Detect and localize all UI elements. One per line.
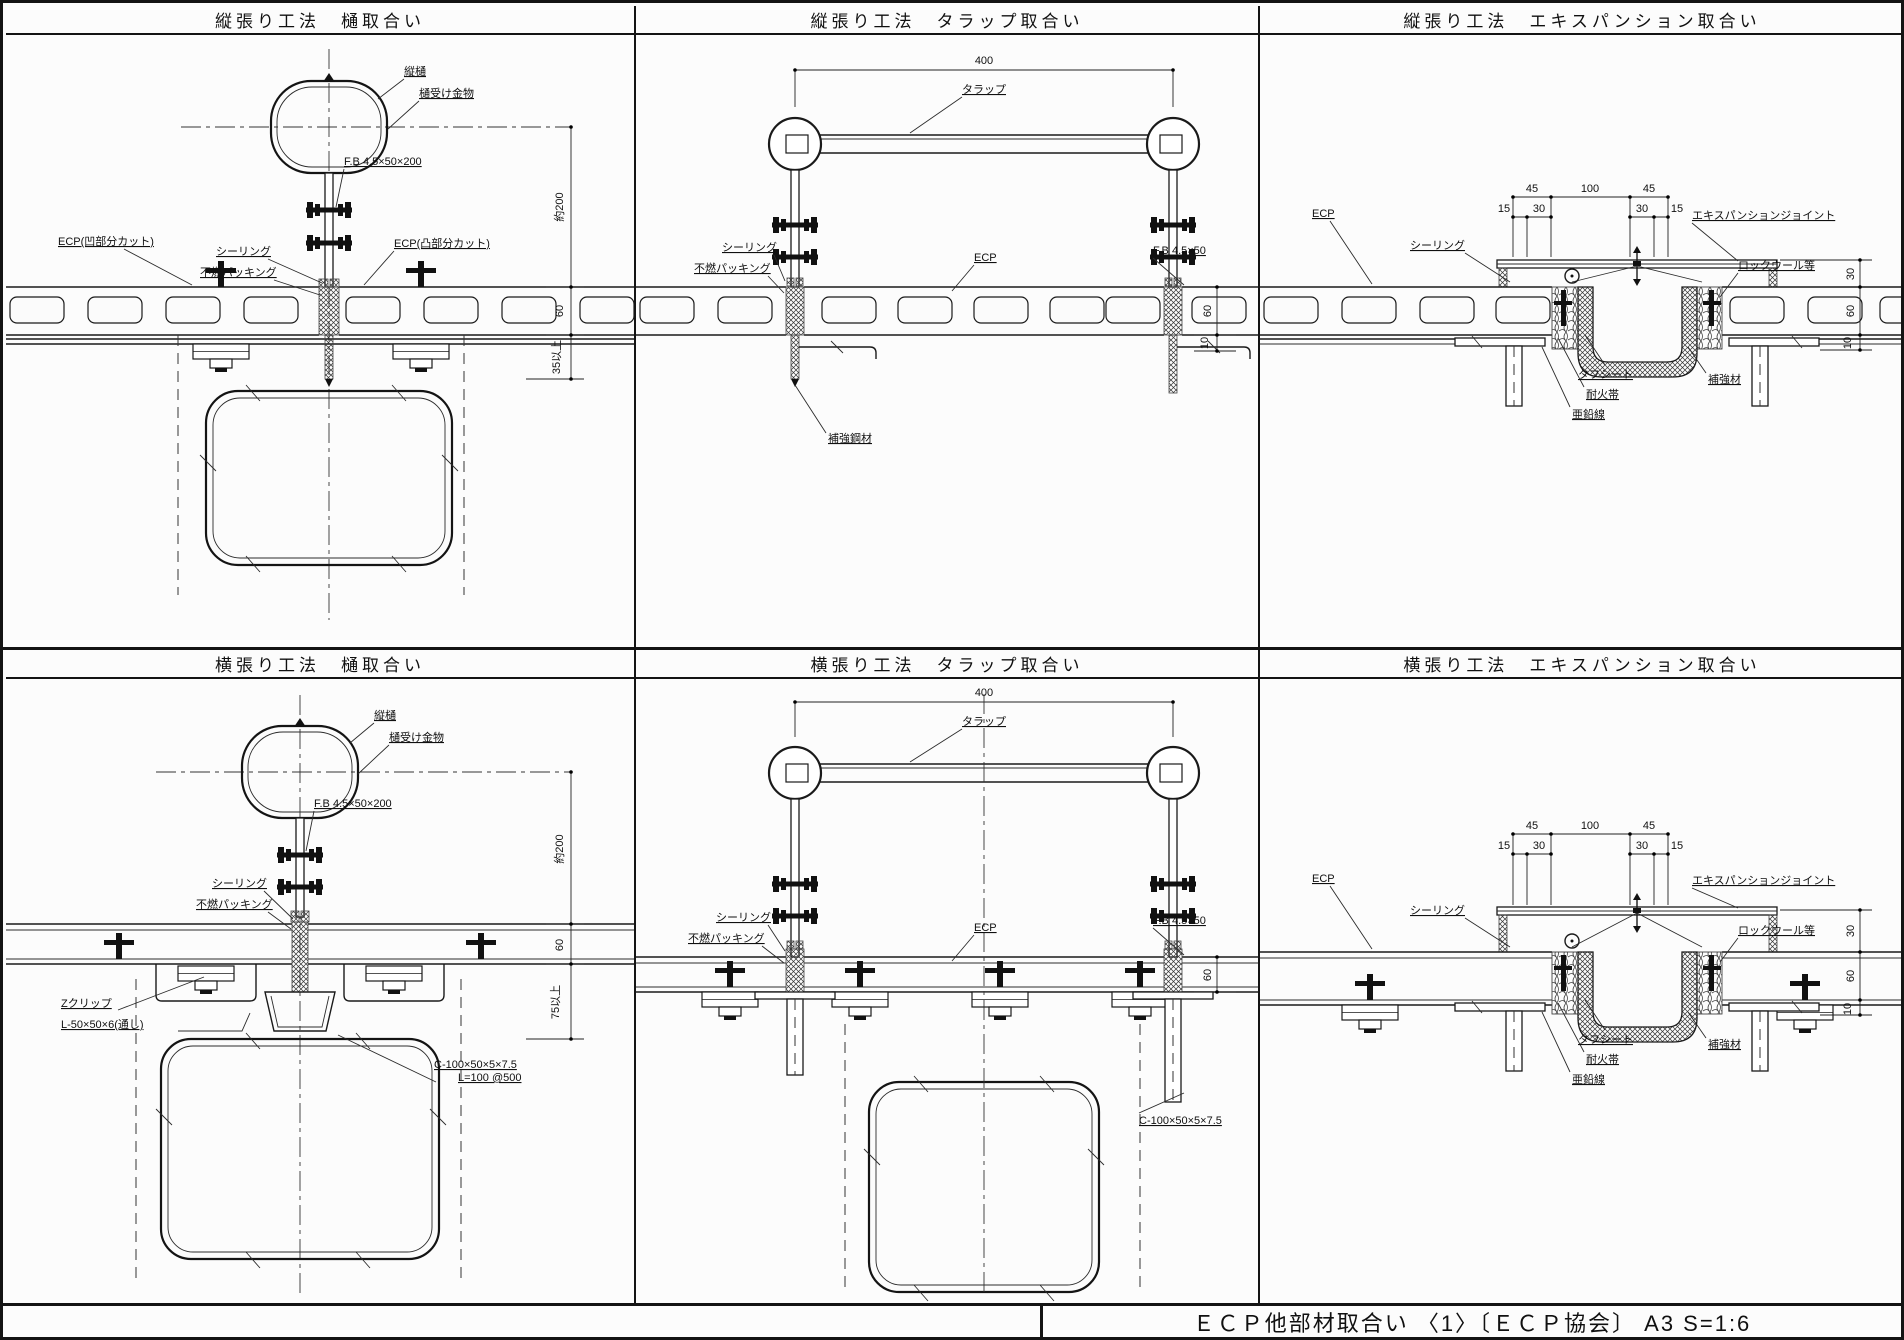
- dimension-right: 60: [1194, 955, 1236, 994]
- fasteners: [702, 961, 1168, 1020]
- column-divider-2: [1258, 6, 1260, 1303]
- dimension-group: 約200 60 35以上: [526, 125, 584, 381]
- ecp-wall-section: [6, 924, 634, 964]
- panel-joint: [319, 279, 339, 387]
- label-sealing: シーリング: [716, 910, 771, 924]
- label-ecp-left: ECP(凹部分カット): [58, 234, 154, 248]
- label-packing: 不燃パッキング: [688, 931, 765, 945]
- label-channel: C-100×50×5×7.5: [1139, 1115, 1222, 1127]
- row-divider: [3, 647, 1901, 650]
- label-ecp: ECP: [974, 922, 997, 934]
- label-fireband: 耐火帯: [1586, 388, 1619, 401]
- dim-100: 100: [1581, 820, 1599, 832]
- dim-10: 10: [1842, 337, 1854, 349]
- label-expansion-joint: エキスパンションジョイント: [1692, 209, 1835, 222]
- label-ladder: タラップ: [962, 83, 1006, 96]
- expansion-cover: [1497, 893, 1777, 952]
- label-gutter-bracket: 樋受け金物: [419, 86, 474, 100]
- panel-title: 縦張り工法 エキスパンション取合い: [1260, 6, 1904, 35]
- label-expansion-joint: エキスパンションジョイント: [1692, 874, 1835, 887]
- centerlines: [156, 695, 571, 1294]
- label-angle: L-50×50×6(通し): [61, 1018, 144, 1031]
- panel-title: 横張り工法 エキスパンション取合い: [1260, 650, 1904, 679]
- dim-15b: 15: [1671, 840, 1683, 852]
- box-column: [136, 979, 461, 1284]
- column-divider-1: [634, 6, 636, 1303]
- dim-200: 約200: [552, 834, 566, 863]
- label-ecp: ECP: [974, 252, 997, 264]
- dim-60: 60: [1202, 305, 1214, 317]
- label-group: 縦樋 樋受け金物 F.B 4.5×50×200 シーリング 不燃パッキング EC…: [58, 64, 490, 295]
- panel-yoko-toi: 横張り工法 樋取合い: [6, 650, 634, 1303]
- label-fb: F.B 4.5×50: [1153, 915, 1206, 927]
- label-packing: 不燃パッキング: [200, 265, 277, 279]
- label-sheet: タフシート: [1578, 1033, 1633, 1046]
- label-ladder: タラップ: [962, 715, 1006, 728]
- label-fb: F.B 4.5×50: [1153, 245, 1206, 257]
- dim-60: 60: [1845, 305, 1857, 317]
- dim-15a: 15: [1498, 203, 1510, 215]
- title-block-text: ＥＣＰ他部材取合い 〈1〉〔ＥＣＰ協会〕 A3 S=1:6: [1193, 1306, 1752, 1338]
- dimension-400: 400: [793, 55, 1175, 107]
- dim-10: 10: [1842, 1003, 1854, 1015]
- label-fb: F.B 4.5×50×200: [314, 798, 392, 810]
- dim-30a: 30: [1533, 203, 1545, 215]
- label-ecp: ECP: [1312, 873, 1335, 885]
- label-zclip: Zクリップ: [61, 997, 112, 1010]
- dim-30: 30: [1845, 925, 1857, 937]
- dim-45b: 45: [1643, 183, 1655, 195]
- panel-title: 横張り工法 樋取合い: [6, 650, 634, 679]
- label-sheet: タフシート: [1578, 368, 1633, 381]
- label-gutter-bracket: 樋受け金物: [389, 730, 444, 744]
- dim-60: 60: [1845, 970, 1857, 982]
- dim-45b: 45: [1643, 820, 1655, 832]
- label-ecp: ECP: [1312, 208, 1335, 220]
- dimension-top: 45 100 45 15 30 30 15: [1498, 820, 1683, 905]
- dimension-group: 約200 60 75以上: [526, 770, 584, 1041]
- dim-30: 30: [1845, 268, 1857, 280]
- drawing-yoko-expansion: 45 100 45 15 30 30 15: [1260, 679, 1904, 1303]
- label-packing: 不燃パッキング: [694, 261, 771, 275]
- dim-60: 60: [554, 939, 566, 951]
- label-downpipe: 縦樋: [404, 64, 426, 78]
- dim-60: 60: [1202, 969, 1214, 981]
- dim-30a: 30: [1533, 840, 1545, 852]
- dim-15b: 15: [1671, 203, 1683, 215]
- dim-30b: 30: [1636, 840, 1648, 852]
- title-block: ＥＣＰ他部材取合い 〈1〉〔ＥＣＰ協会〕 A3 S=1:6: [1040, 1303, 1901, 1337]
- label-sealing: シーリング: [212, 876, 267, 890]
- label-reinforce: 補強鋼材: [828, 431, 872, 445]
- label-sealing: シーリング: [1410, 903, 1465, 917]
- label-downpipe: 縦樋: [374, 708, 396, 722]
- panel-tate-taraップ: 縦張り工法 タラップ取合い 400: [636, 6, 1258, 647]
- panel-title: 縦張り工法 樋取合い: [6, 6, 634, 35]
- dimension-top: 45 100 45 15 30 30 15: [1498, 183, 1683, 257]
- dim-45a: 45: [1526, 183, 1538, 195]
- dim-35min: 35以上: [550, 340, 563, 374]
- dim-200: 約200: [552, 192, 566, 221]
- expansion-cover: [1497, 246, 1777, 287]
- dim-75min: 75以上: [549, 985, 562, 1019]
- drawing-tate-ladder: 400: [636, 35, 1258, 647]
- dim-400: 400: [975, 55, 993, 67]
- dim-15a: 15: [1498, 840, 1510, 852]
- label-channel-pitch: L=100 @500: [458, 1072, 521, 1084]
- dim-30b: 30: [1636, 203, 1648, 215]
- panel-tate-toi: 縦張り工法 樋取合い: [6, 6, 634, 647]
- drawing-tate-expansion: 45 100 45 15 30 30 15: [1260, 35, 1904, 647]
- panel-yoko-ladder: 横張り工法 タラップ取合い 400: [636, 650, 1258, 1303]
- drawing-yoko-ladder: 400: [636, 679, 1258, 1303]
- label-fb: F.B 4.5×50×200: [344, 156, 422, 168]
- label-wire: 亜鉛線: [1572, 1072, 1605, 1086]
- expansion-joint: [1552, 287, 1722, 377]
- box-column: [178, 335, 464, 595]
- panel-title: 横張り工法 タラップ取合い: [636, 650, 1258, 679]
- drawing-yoko-toi: 約200 60 75以上 縦樋 樋受け金物 F.B 4.5×50×200 シーリ…: [6, 679, 634, 1303]
- label-rockwool: ロックウール等: [1738, 258, 1815, 272]
- label-reinforce: 補強材: [1708, 1037, 1741, 1051]
- dim-60: 60: [554, 305, 566, 317]
- dim-45a: 45: [1526, 820, 1538, 832]
- panel-tate-expansion: 縦張り工法 エキスパンション取合い 45 100 45 15 30 30 15: [1260, 6, 1904, 647]
- panel-yoko-expansion: 横張り工法 エキスパンション取合い 45 100 45 15 30 30 15: [1260, 650, 1904, 1303]
- drawing-tate-toi: 約200 60 35以上 縦樋 樋受け金物 F.B 4.5×50×200 シーリ…: [6, 35, 634, 647]
- fb-plate: [277, 818, 323, 917]
- dim-100: 100: [1581, 183, 1599, 195]
- label-packing: 不燃パッキング: [196, 897, 273, 911]
- drawing-sheet: 縦張り工法 樋取合い: [0, 0, 1904, 1340]
- label-fireband: 耐火帯: [1586, 1053, 1619, 1066]
- label-reinforce: 補強材: [1708, 372, 1741, 386]
- label-sealing: シーリング: [1410, 238, 1465, 252]
- label-rockwool: ロックウール等: [1738, 923, 1815, 937]
- fb-plate: [306, 173, 352, 287]
- dim-10: 10: [1199, 337, 1211, 349]
- label-sealing: シーリング: [722, 240, 777, 254]
- label-group: タラップ シーリング 不燃パッキング ECP F.B 4.5×50 C-100×…: [688, 715, 1222, 1127]
- label-ecp-right: ECP(凸部分カット): [394, 236, 490, 250]
- label-group: 縦樋 樋受け金物 F.B 4.5×50×200 シーリング 不燃パッキング Zク…: [61, 708, 521, 1084]
- label-channel: C-100×50×5×7.5: [434, 1059, 517, 1071]
- label-sealing: シーリング: [216, 244, 271, 258]
- panel-title: 縦張り工法 タラップ取合い: [636, 6, 1258, 35]
- label-wire: 亜鉛線: [1572, 407, 1605, 421]
- expansion-joint: [1552, 952, 1722, 1042]
